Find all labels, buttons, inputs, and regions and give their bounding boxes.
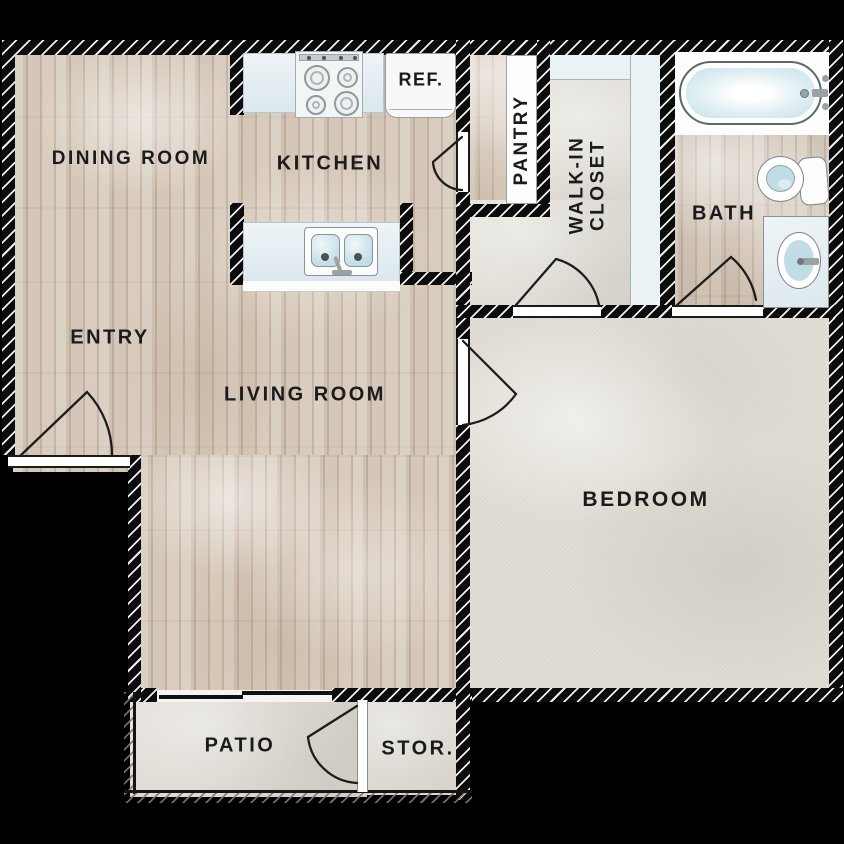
- room-label-patio: PATIO: [205, 735, 276, 758]
- bath-door-arc: [677, 257, 756, 305]
- closet-label-line2: CLOSET: [588, 136, 609, 235]
- pantry-door-arc: [433, 137, 462, 190]
- storage-door-arc: [308, 706, 357, 783]
- bedroom-door-arc: [463, 341, 516, 425]
- entry-door-arc: [20, 392, 112, 456]
- room-label-bedroom: BEDROOM: [582, 488, 709, 512]
- floor-plan: REF. DINING ROOM: [0, 0, 844, 844]
- refrigerator-label: REF.: [398, 70, 443, 91]
- room-label-kitchen: KITCHEN: [277, 153, 383, 176]
- door-swing-arcs: [0, 0, 844, 844]
- room-label-living: LIVING ROOM: [224, 384, 386, 407]
- room-label-dining: DINING ROOM: [52, 148, 210, 170]
- room-label-pantry: PANTRY: [511, 95, 533, 186]
- room-label-entry: ENTRY: [70, 327, 150, 350]
- room-label-bath: BATH: [692, 203, 756, 226]
- closet-label-line1: WALK-IN: [567, 136, 588, 235]
- room-label-storage: STOR.: [381, 738, 454, 761]
- closet-door-arc: [516, 259, 599, 305]
- room-label-walk-in-closet: WALK-IN CLOSET: [567, 136, 610, 235]
